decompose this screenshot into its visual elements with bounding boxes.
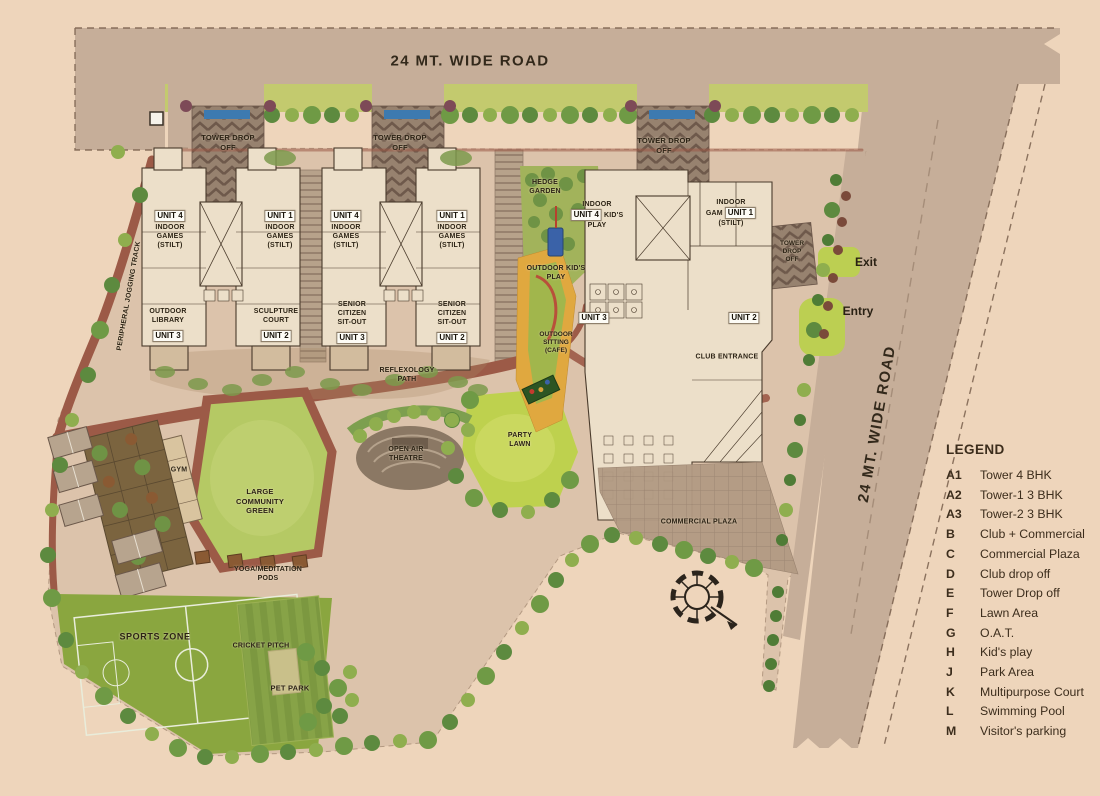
outdoor-library-label: OUTDOORLIBRARY UNIT 3: [149, 307, 186, 343]
outdoor-kids-play-label: OUTDOOR KID'SPLAY: [527, 264, 586, 282]
tower-drop-off-3: TOWER DROPOFF: [637, 136, 691, 155]
legend-item: GO.A.T.: [946, 624, 1100, 644]
site-plan-graphic: [0, 0, 1100, 796]
legend-item: MVisitor's parking: [946, 722, 1100, 742]
tower-drop-off-2: TOWER DROPOFF: [373, 133, 427, 152]
gate-kiosk: [150, 112, 163, 125]
legend: LEGEND A1Tower 4 BHK A2Tower-1 3 BHK A3T…: [946, 442, 1100, 742]
commercial-plaza-label: COMMERCIAL PLAZA: [661, 518, 738, 527]
unit-block-3: UNIT 4 INDOORGAMES(STILT): [330, 205, 361, 250]
legend-item: JPark Area: [946, 663, 1100, 683]
legend-item: FLawn Area: [946, 604, 1100, 624]
unit-chip: UNIT 2: [260, 330, 291, 342]
unit-chip: UNIT 3: [336, 332, 367, 344]
club-entrance-label: CLUB ENTRANCE: [696, 353, 759, 362]
entry-island: [799, 298, 845, 356]
top-road-label: 24 MT. WIDE ROAD: [390, 53, 549, 70]
tower-drop-off-right: TOWERDROPOFF: [780, 240, 804, 264]
legend-item: ETower Drop off: [946, 584, 1100, 604]
unit-2-chip: UNIT 2: [728, 307, 759, 325]
legend-item: KMultipurpose Court: [946, 683, 1100, 703]
legend-item: A1Tower 4 BHK: [946, 466, 1100, 486]
legend-item: DClub drop off: [946, 565, 1100, 585]
unit-3-chip: UNIT 3: [578, 307, 609, 325]
indoor-kids-play-label: INDOOR UNIT 4KID'S PLAY: [571, 200, 624, 230]
outdoor-sitting-label: OUTDOORSITTING(CAFE): [539, 331, 572, 355]
unit-chip: UNIT 4: [571, 209, 602, 221]
legend-item: HKid's play: [946, 643, 1100, 663]
exit-label: Exit: [855, 255, 877, 269]
senior-citizen-label-2: SENIORCITIZENSIT-OUT UNIT 2: [436, 300, 467, 345]
oat-label: OPEN AIRTHEATRE: [388, 445, 423, 463]
legend-item: BClub + Commercial: [946, 525, 1100, 545]
legend-item: CCommercial Plaza: [946, 545, 1100, 565]
unit-block-1: UNIT 4 INDOORGAMES(STILT): [154, 205, 185, 250]
hedge-garden-label: HEDGEGARDEN: [529, 178, 561, 196]
pet-park-label: PET PARK: [271, 683, 310, 693]
sports-zone-label: SPORTS ZONE: [119, 632, 190, 643]
legend-title: LEGEND: [946, 442, 1100, 457]
entry-label: Entry: [843, 304, 874, 318]
yoga-pods-label: YOGA/MEDITATIONPODS: [234, 565, 302, 583]
unit-block-2: UNIT 1 INDOORGAMES(STILT): [264, 205, 295, 250]
indoor-games-label: INDOOR GAMUNIT 1 (STILT): [706, 198, 756, 228]
legend-item: LSwimming Pool: [946, 702, 1100, 722]
unit-chip: UNIT 1: [436, 210, 467, 222]
unit-chip: UNIT 4: [330, 210, 361, 222]
site-plan-page: 24 MT. WIDE ROAD 24 MT. WIDE ROAD TOWER …: [0, 0, 1100, 796]
legend-item: A2Tower-1 3 BHK: [946, 486, 1100, 506]
senior-citizen-label-1: SENIORCITIZENSIT-OUT UNIT 3: [336, 300, 367, 345]
cricket-pitch-label: CRICKET PITCH: [233, 642, 290, 651]
unit-chip: UNIT 3: [152, 330, 183, 342]
gym-label: GYM: [171, 466, 188, 475]
tower-drop-off-1: TOWER DROPOFF: [201, 133, 255, 152]
reflexology-path-label: REFLEXOLOGYPATH: [379, 366, 434, 384]
unit-chip: UNIT 1: [725, 207, 756, 219]
sculpture-court-label: SCULPTURECOURT UNIT 2: [254, 307, 299, 343]
unit-chip: UNIT 4: [154, 210, 185, 222]
swimming-pool: [548, 228, 563, 256]
unit-chip: UNIT 1: [264, 210, 295, 222]
legend-item: A3Tower-2 3 BHK: [946, 505, 1100, 525]
party-lawn-label: PARTYLAWN: [508, 431, 532, 449]
unit-block-4: UNIT 1 INDOORGAMES(STILT): [436, 205, 467, 250]
unit-chip: UNIT 2: [436, 332, 467, 344]
community-green-label: LARGECOMMUNITYGREEN: [236, 487, 284, 516]
